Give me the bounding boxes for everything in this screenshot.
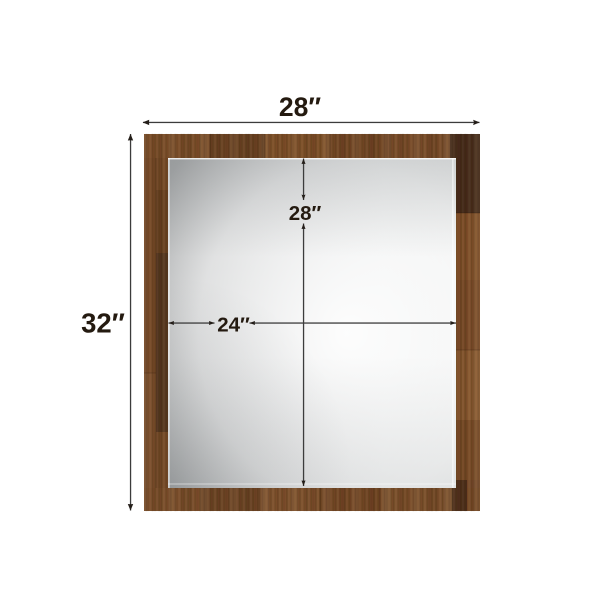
- svg-text:32″: 32″: [81, 308, 125, 339]
- svg-text:28″: 28″: [279, 92, 321, 122]
- svg-text:24″: 24″: [217, 314, 250, 337]
- svg-text:28″: 28″: [289, 202, 322, 225]
